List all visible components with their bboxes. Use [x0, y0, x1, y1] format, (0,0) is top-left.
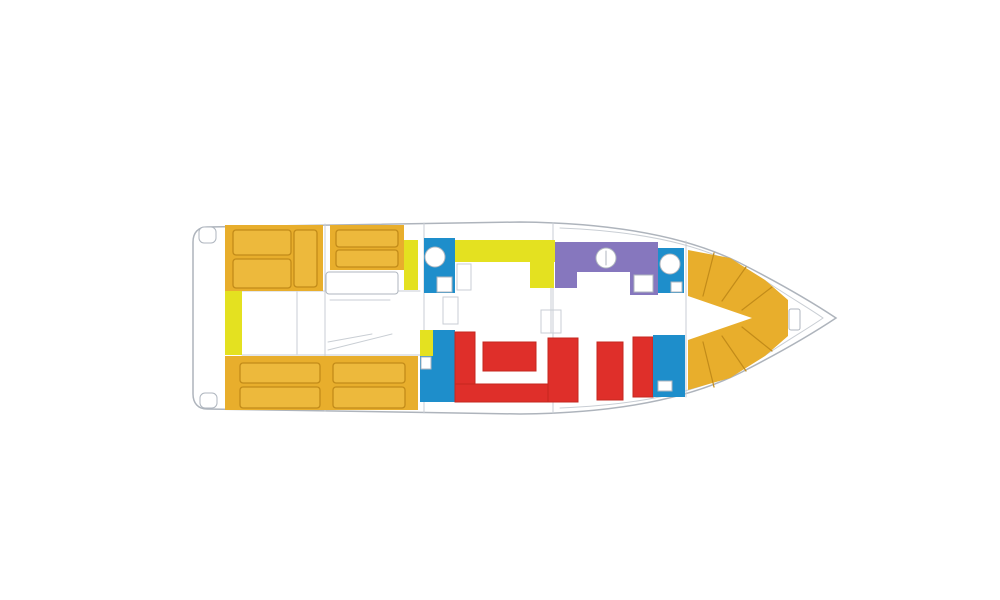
- fixture-starboard: [658, 381, 672, 391]
- sink-basin: [425, 247, 445, 267]
- bench-seat: [597, 342, 623, 400]
- helm-station-left: [555, 272, 577, 288]
- sunpad-cushion: [333, 387, 405, 408]
- sunpad-cushion: [240, 387, 320, 408]
- counter-strip-mid: [404, 240, 418, 290]
- sunpad-cushion: [233, 230, 291, 255]
- sunpad-cushion: [336, 250, 398, 267]
- yacht-deck-plan: [0, 0, 1000, 600]
- sunpad-cushion: [333, 363, 405, 383]
- sofa-right-arm: [548, 338, 578, 402]
- berth-outline: [326, 272, 398, 294]
- coffee-table: [483, 342, 536, 371]
- sunpad-cushion: [233, 259, 291, 288]
- stern-step-top: [199, 227, 216, 243]
- side-counter-strip: [225, 291, 242, 355]
- fixture: [437, 277, 452, 292]
- counter-strip-lower: [420, 330, 433, 356]
- deck-plan-svg: [0, 0, 1000, 600]
- nav-table: [634, 275, 653, 292]
- fixture-bow: [671, 282, 682, 292]
- bench-seat-2: [633, 337, 653, 397]
- galley-counter-return: [530, 262, 554, 288]
- bow-hatch: [789, 309, 800, 330]
- sink-basin-bow: [660, 254, 680, 274]
- galley-counter: [455, 240, 555, 262]
- fixture-salon: [421, 357, 431, 369]
- sunpad-cushion: [294, 230, 317, 287]
- stern-step-bottom: [200, 393, 217, 408]
- sunpad-cushion: [336, 230, 398, 247]
- sunpad-cushion: [240, 363, 320, 383]
